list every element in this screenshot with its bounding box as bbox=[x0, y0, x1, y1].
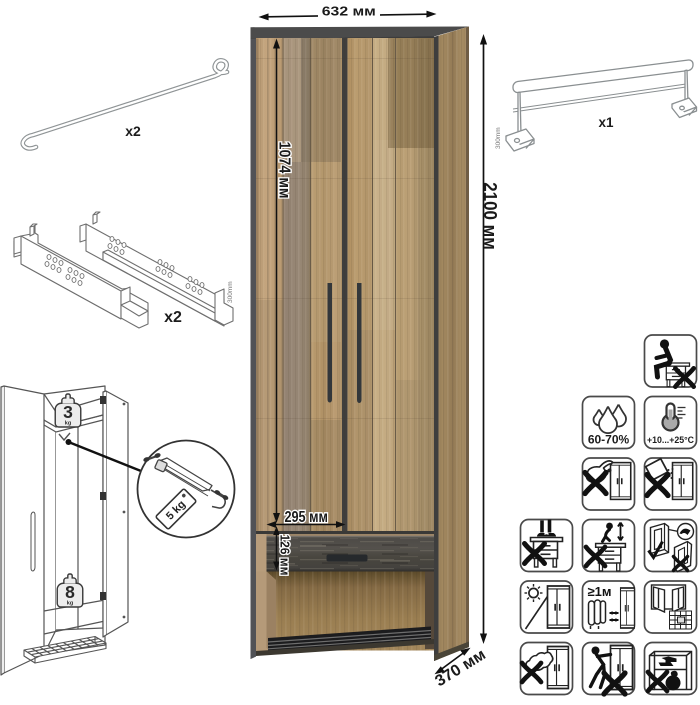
svg-text:300mm: 300mm bbox=[495, 127, 502, 149]
svg-text:3: 3 bbox=[63, 402, 73, 422]
svg-text:1074 мм: 1074 мм bbox=[276, 142, 293, 199]
svg-text:x1: x1 bbox=[598, 115, 614, 130]
svg-text:126 мм: 126 мм bbox=[278, 535, 292, 576]
svg-text:295 мм: 295 мм bbox=[284, 509, 328, 526]
svg-text:2100 мм: 2100 мм bbox=[480, 182, 500, 250]
svg-text:≥1м: ≥1м bbox=[588, 584, 612, 599]
svg-text:kg: kg bbox=[65, 421, 71, 427]
svg-text:300mm: 300mm bbox=[227, 281, 234, 303]
svg-text:632 мм: 632 мм bbox=[322, 3, 376, 18]
svg-text:x2: x2 bbox=[164, 309, 182, 326]
svg-text:kg: kg bbox=[67, 601, 73, 607]
svg-text:60-70%: 60-70% bbox=[588, 433, 630, 447]
svg-text:x2: x2 bbox=[125, 123, 141, 139]
svg-text:+10...+25°C: +10...+25°C bbox=[647, 435, 695, 445]
svg-text:8: 8 bbox=[65, 582, 75, 602]
